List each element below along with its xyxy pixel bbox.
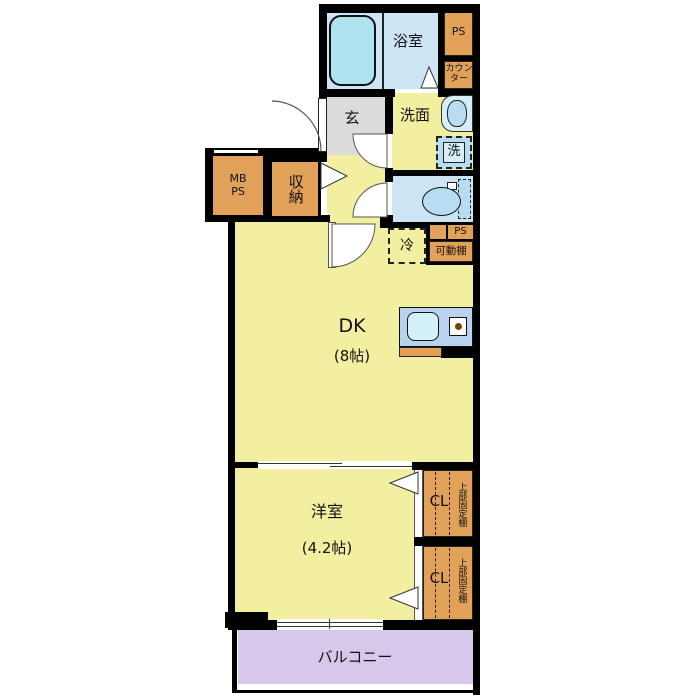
wall-balcony-left <box>232 628 237 692</box>
dk-label: DK <box>302 316 402 338</box>
wall-cl-divider <box>414 537 480 546</box>
floor-plan: 洗 冷 PS 可動棚 MB PS 収納 浴室 <box>0 0 700 700</box>
meter-box-line1: MB <box>229 173 246 186</box>
closet-upper-shelf-label: 上部固定棚 <box>456 473 466 535</box>
closet-upper-label: CL <box>421 493 457 510</box>
refrigerator-label: 冷 <box>400 238 414 254</box>
movable-shelf-box: 可動棚 <box>429 241 473 262</box>
burner-dot <box>455 323 462 330</box>
washbasin-bowl <box>447 100 467 127</box>
wall-main-left <box>228 215 235 628</box>
wall-storage-front <box>318 156 321 216</box>
wall-yo-bottom-r <box>383 620 480 630</box>
entrance-label: 玄 <box>337 110 367 127</box>
wall-bath-ps <box>438 12 444 89</box>
slider-line-1 <box>258 463 342 464</box>
wall-dk-door-stub <box>380 215 393 228</box>
washing-machine-label: 洗 <box>447 145 460 160</box>
movable-shelf-label: 可動棚 <box>435 245 467 257</box>
entry-door-arc <box>272 101 321 151</box>
balcony-label: バルコニー <box>305 649 405 666</box>
wall-dk-yo-right <box>412 462 480 470</box>
bathroom-label: 浴室 <box>383 33 433 50</box>
wall-jog <box>225 612 268 628</box>
bathtub-divider <box>382 12 384 89</box>
wall-storage-top <box>263 148 322 162</box>
closet-lower-label: CL <box>421 570 457 587</box>
window-line-2 <box>277 626 383 627</box>
meter-door-notch <box>214 150 258 153</box>
meter-box: MB PS <box>213 156 263 215</box>
storage-box: 収納 <box>272 162 318 216</box>
pipe-shaft-mid-box: PS <box>448 225 473 239</box>
counter-label: カウンター <box>445 64 473 85</box>
wall-balcony-bottom <box>232 690 480 693</box>
window-line-1 <box>277 622 383 623</box>
western-room-label: 洋室 <box>277 503 377 521</box>
dk-size-label: (8帖) <box>302 348 402 365</box>
wall-mbps-left <box>205 148 213 222</box>
kitchen-cabinet <box>399 347 442 357</box>
wall-bath-bottom-l <box>319 89 395 97</box>
dk-door-leaf <box>328 222 336 268</box>
window-tick <box>329 619 330 629</box>
storage-label: 収納 <box>286 174 303 204</box>
wall-wash-toilet <box>392 170 473 176</box>
wall-top <box>319 4 480 13</box>
kitchen-sink <box>407 312 439 341</box>
bathtub <box>329 15 376 86</box>
slider-line-2 <box>330 466 412 467</box>
balcony-window <box>277 619 383 629</box>
pipe-shaft-mid-label: PS <box>454 226 466 238</box>
western-room-size-label: (4.2帖) <box>277 540 377 557</box>
toilet-bowl <box>422 187 461 216</box>
washroom-label: 洗面 <box>392 107 438 124</box>
wall-bath-left <box>319 4 327 100</box>
pipe-shaft-filler <box>430 225 446 239</box>
washing-machine-box: 洗 <box>443 142 465 163</box>
closet-lower-shelf-label: 上部固定棚 <box>456 549 466 611</box>
refrigerator-box: 冷 <box>388 228 426 264</box>
kitchen-burner <box>449 317 467 336</box>
entry-door-leaf <box>318 98 327 152</box>
hallway <box>327 155 385 222</box>
meter-box-line2: PS <box>231 186 245 199</box>
wall-ps-counter <box>444 56 473 61</box>
wall-dk-yo-left <box>228 462 258 468</box>
pipe-shaft-top-label: PS <box>444 26 473 39</box>
